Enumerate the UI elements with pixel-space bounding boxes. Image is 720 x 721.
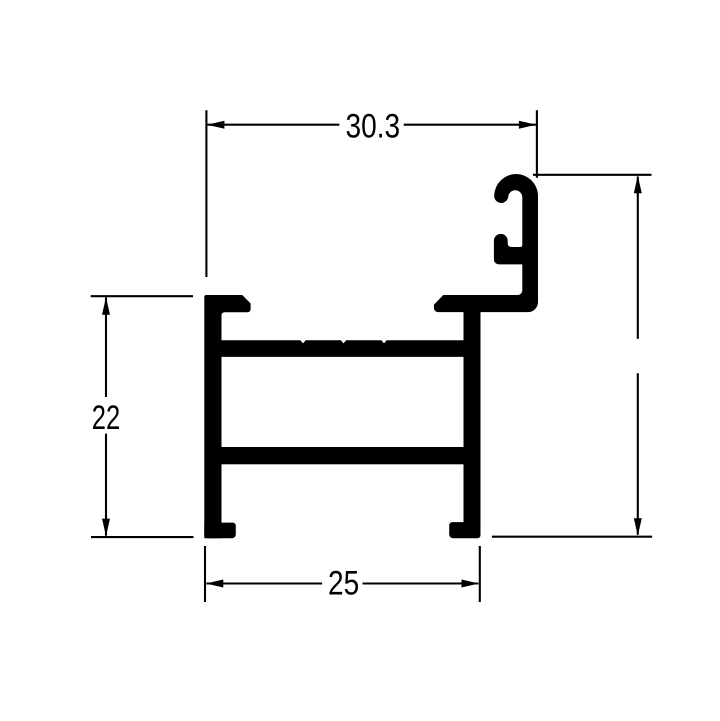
svg-text:30.3: 30.3 <box>346 107 401 145</box>
svg-text:25: 25 <box>328 565 359 603</box>
svg-text:22: 22 <box>92 399 120 437</box>
